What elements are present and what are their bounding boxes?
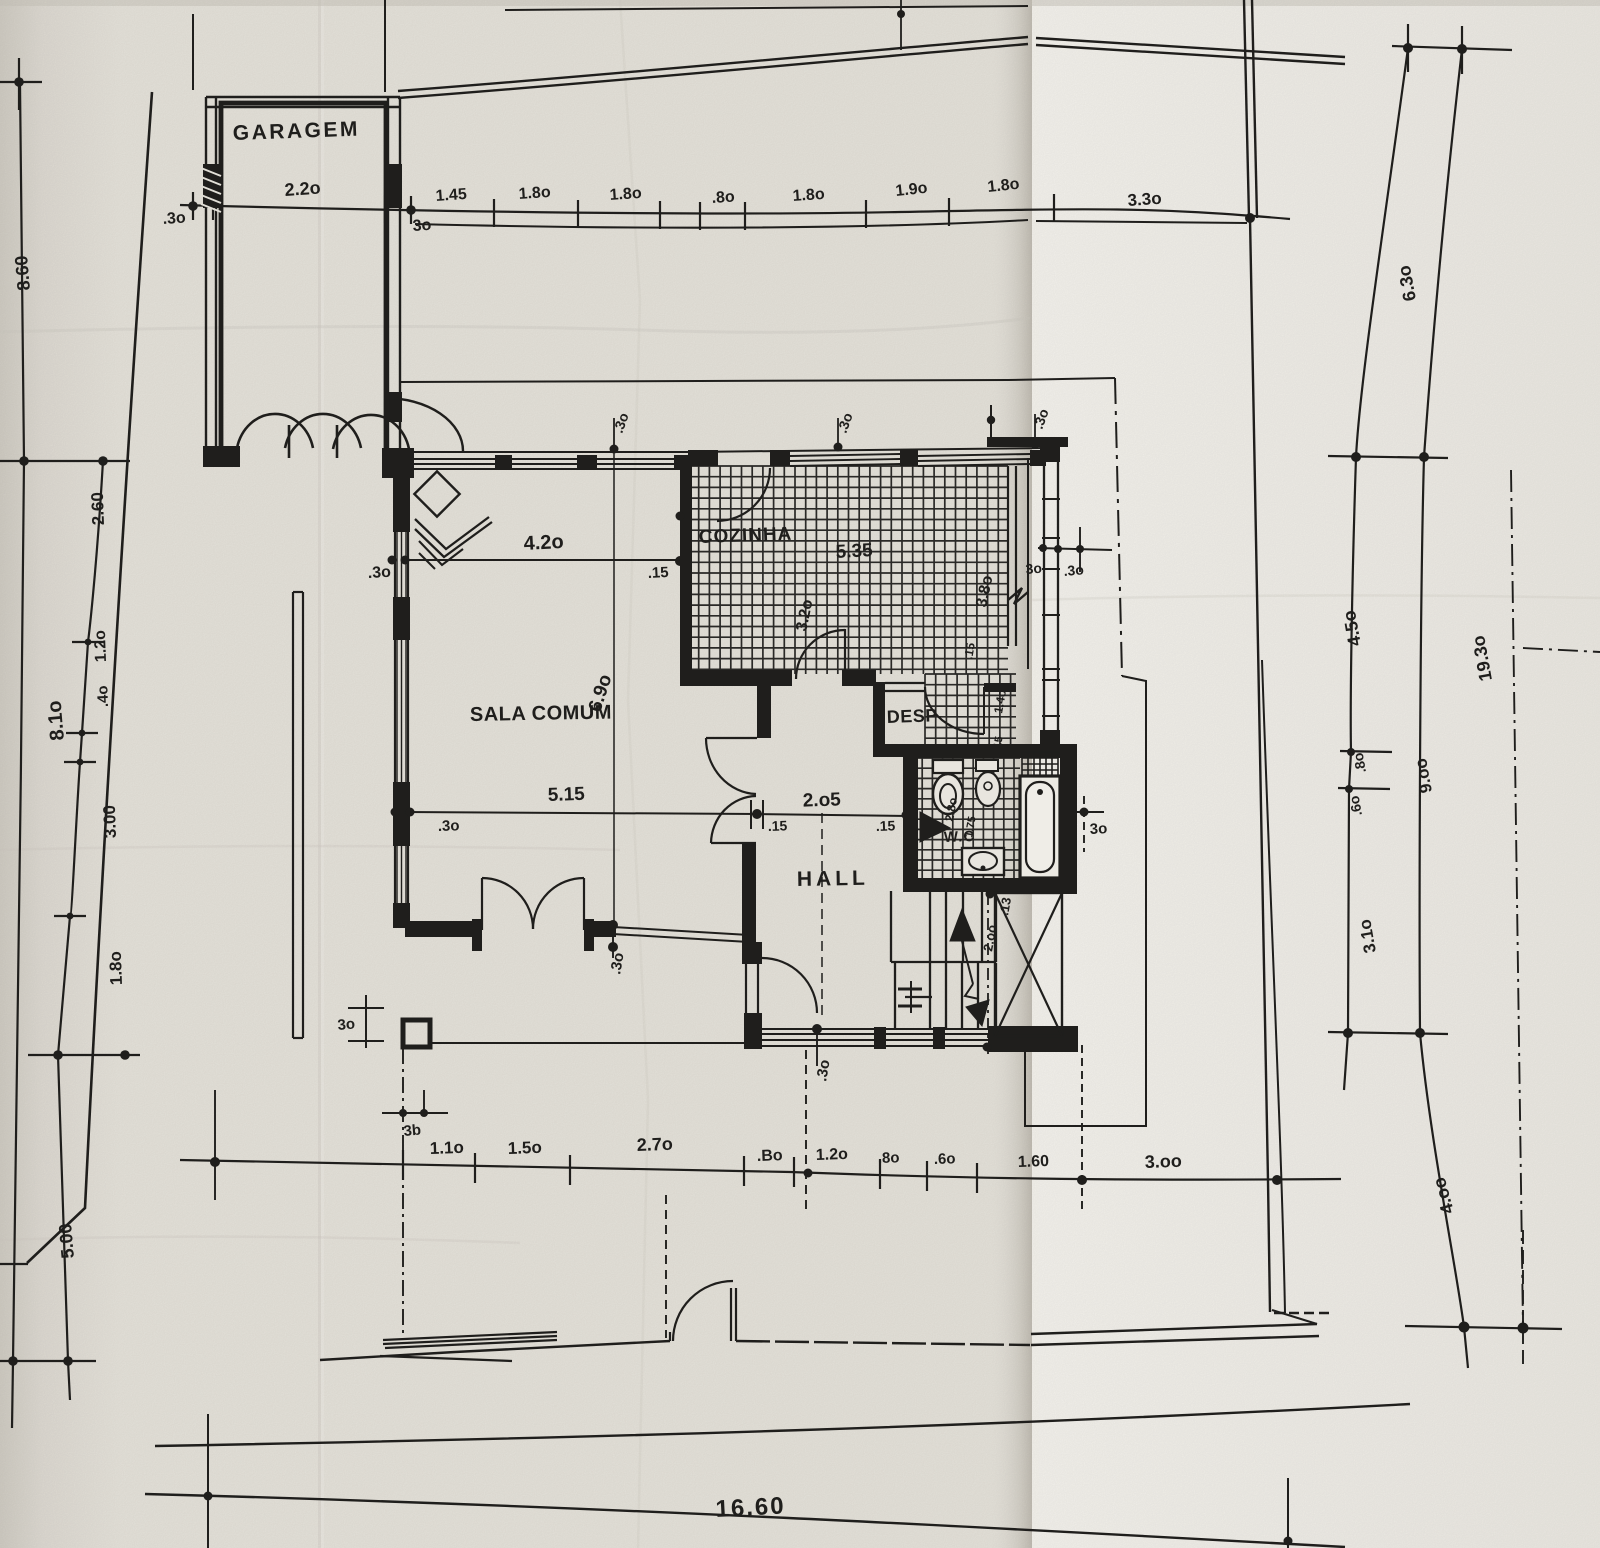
svg-text:2.2o: 2.2o bbox=[284, 178, 321, 200]
svg-text:3.oo: 3.oo bbox=[1144, 1151, 1182, 1172]
svg-text:.3o: .3o bbox=[1063, 561, 1085, 579]
svg-text:3.00: 3.00 bbox=[100, 805, 120, 839]
svg-text:.Bo: .Bo bbox=[757, 1147, 784, 1165]
svg-text:5.15: 5.15 bbox=[547, 784, 585, 806]
svg-text:1.1o: 1.1o bbox=[429, 1138, 464, 1158]
svg-text:1.8o: 1.8o bbox=[609, 185, 642, 204]
svg-text:.3o: .3o bbox=[367, 564, 391, 582]
svg-text:3o: 3o bbox=[337, 1016, 356, 1034]
svg-text:.8o: .8o bbox=[878, 1149, 900, 1167]
svg-text:.15: .15 bbox=[876, 817, 896, 834]
svg-text:.8o: .8o bbox=[711, 188, 735, 207]
svg-text:GARAGEM: GARAGEM bbox=[232, 118, 360, 145]
svg-text:COZINHA: COZINHA bbox=[698, 524, 792, 548]
svg-text:1.45: 1.45 bbox=[435, 186, 467, 205]
svg-text:1.60: 1.60 bbox=[1018, 1153, 1050, 1171]
svg-text:SALA COMUM: SALA COMUM bbox=[470, 702, 612, 726]
svg-text:.15: .15 bbox=[768, 817, 788, 834]
svg-text:8.1o: 8.1o bbox=[44, 700, 69, 742]
svg-text:1.2o: 1.2o bbox=[92, 630, 110, 663]
svg-text:5.00: 5.00 bbox=[55, 1223, 78, 1260]
svg-text:3o: 3o bbox=[1089, 820, 1107, 838]
svg-text:4.2o: 4.2o bbox=[523, 531, 564, 555]
svg-text:3.3o: 3.3o bbox=[1127, 189, 1162, 210]
svg-text:2.7o: 2.7o bbox=[636, 1134, 673, 1155]
svg-text:2.o5: 2.o5 bbox=[802, 789, 841, 811]
svg-text:.15: .15 bbox=[647, 564, 669, 582]
svg-text:HALL: HALL bbox=[797, 867, 869, 891]
svg-text:1.8o: 1.8o bbox=[518, 184, 551, 203]
svg-text:1.8o: 1.8o bbox=[106, 951, 126, 986]
svg-text:1.9o: 1.9o bbox=[895, 180, 929, 200]
svg-text:1.8o: 1.8o bbox=[987, 176, 1021, 196]
svg-text:3b: 3b bbox=[403, 1122, 422, 1140]
svg-text:2.60: 2.60 bbox=[88, 492, 108, 526]
svg-text:DESP: DESP bbox=[886, 705, 938, 727]
svg-text:8.60: 8.60 bbox=[11, 255, 34, 292]
svg-text:3o: 3o bbox=[412, 217, 432, 235]
svg-text:.4o: .4o bbox=[94, 685, 112, 707]
svg-text:.3o: .3o bbox=[438, 817, 460, 835]
svg-text:16.60: 16.60 bbox=[715, 1492, 786, 1523]
svg-text:3o: 3o bbox=[1025, 560, 1043, 577]
svg-text:1.8o: 1.8o bbox=[792, 186, 825, 205]
svg-text:1.2o: 1.2o bbox=[816, 1146, 849, 1164]
svg-text:.3o: .3o bbox=[162, 209, 186, 228]
svg-text:5.35: 5.35 bbox=[835, 540, 873, 563]
svg-text:.6o: .6o bbox=[934, 1150, 956, 1168]
svg-text:1.5o: 1.5o bbox=[507, 1138, 542, 1158]
svg-text:.15: .15 bbox=[961, 641, 978, 660]
